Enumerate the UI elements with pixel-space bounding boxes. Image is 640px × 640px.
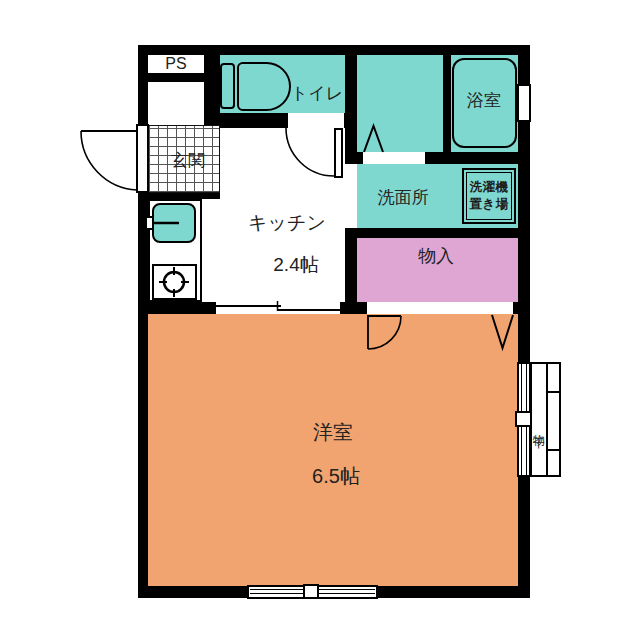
wall-bath-bottom-a [345, 152, 363, 164]
wall-right-seg1 [518, 55, 530, 84]
wall-washroom-bottom [345, 228, 530, 238]
bathroom-window [517, 84, 531, 122]
washing-machine-space-label: 洗濯機 置き場 [466, 172, 512, 220]
ps-label: PS [165, 56, 186, 72]
bathroom-label: 浴室 [467, 92, 501, 109]
wall-ps-strip [146, 73, 204, 82]
wall-left-lower [138, 192, 148, 598]
stove-box [152, 264, 197, 300]
kitchen-sink-icon [152, 203, 196, 243]
floorplan: 洗濯機 置き場 PS トイレ 浴室 [0, 0, 640, 640]
wall-entrance-strip [148, 192, 220, 199]
toilet-label: トイレ [291, 85, 343, 102]
toilet-door-arc [286, 128, 334, 176]
wall-center-c [513, 302, 530, 314]
western-room-label: 洋室 [313, 422, 353, 442]
window-latch [515, 411, 532, 427]
kitchen-size-label: 2.4帖 [273, 255, 318, 274]
closet-label: 物入 [418, 247, 454, 265]
bath-door-opening [363, 152, 425, 164]
wall-mid-upper [345, 55, 357, 164]
wall-top [138, 45, 530, 55]
drying-rack-rail [546, 391, 560, 393]
faucet-base-icon [145, 216, 154, 230]
entrance-door-leaf [136, 124, 149, 193]
drying-rack-rail [546, 449, 560, 451]
toilet-door-leaf [334, 128, 343, 178]
wall-bottom-right [377, 586, 530, 598]
laundry-label-line2: 置き場 [469, 196, 508, 213]
drying-rack-divider [546, 364, 548, 475]
wall-bath-divider [443, 55, 451, 152]
meter-box [148, 82, 204, 125]
washroom-label: 洗面所 [378, 189, 429, 206]
window-latch [303, 584, 319, 599]
shower-area [357, 55, 443, 152]
washing-machine-space-box: 洗濯機 置き場 [462, 168, 516, 224]
wall-left-upper [138, 55, 148, 125]
entrance-label: 玄関 [171, 152, 205, 169]
toilet-door-opening [288, 115, 344, 128]
drying-rack-label: 物干 [533, 424, 545, 432]
washroom-passage-opening [345, 164, 357, 228]
wall-bath-bottom-b [425, 152, 530, 164]
wall-bottom-left [138, 586, 248, 598]
wall-center-b [340, 302, 367, 314]
western-room-size-label: 6.5帖 [312, 466, 360, 486]
kitchen-label: キッチン [248, 213, 326, 232]
wall-right-seg3 [518, 477, 530, 598]
toilet-tank-icon [220, 63, 235, 109]
kitchen-sliding-door-opening [216, 302, 340, 314]
closet-door-opening [367, 302, 513, 314]
western-room [148, 314, 518, 586]
laundry-label-line1: 洗濯機 [470, 179, 509, 196]
toilet-bowl-icon [237, 62, 291, 111]
entrance-door-arc [81, 131, 137, 190]
wall-center-a [138, 302, 216, 314]
